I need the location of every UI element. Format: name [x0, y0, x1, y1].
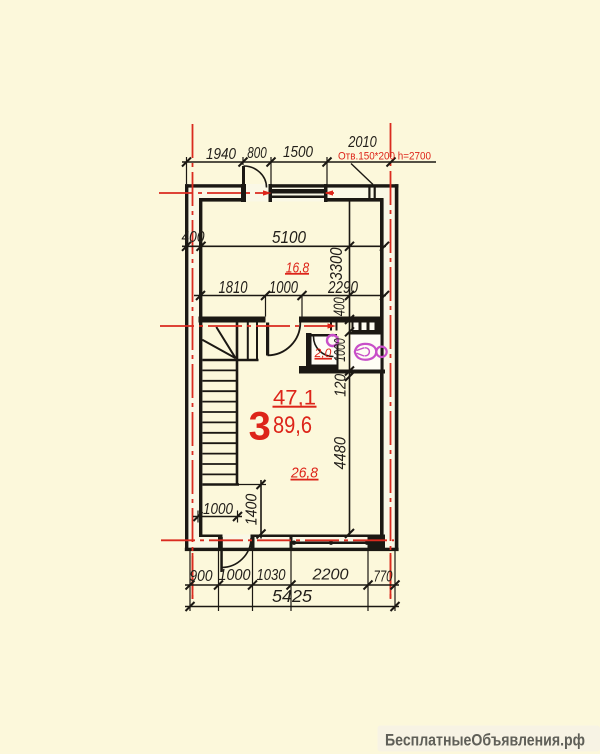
- svg-text:3300: 3300: [326, 247, 346, 280]
- svg-text:3: 3: [249, 405, 271, 449]
- svg-text:800: 800: [247, 145, 267, 162]
- svg-text:1000: 1000: [332, 338, 349, 362]
- svg-text:400: 400: [332, 297, 349, 316]
- svg-text:БесплатныеОбъявления.рф: БесплатныеОбъявления.рф: [385, 731, 585, 750]
- svg-text:1500: 1500: [283, 144, 313, 161]
- svg-text:900: 900: [190, 568, 213, 585]
- svg-text:1000: 1000: [203, 501, 233, 518]
- svg-text:89,6: 89,6: [273, 412, 312, 439]
- svg-text:2200: 2200: [311, 567, 348, 584]
- svg-text:5425: 5425: [272, 586, 312, 606]
- svg-text:1940: 1940: [206, 146, 236, 163]
- svg-text:Отв.150*200 h=2700: Отв.150*200 h=2700: [338, 151, 431, 163]
- svg-text:1000: 1000: [219, 567, 251, 584]
- svg-text:400: 400: [182, 229, 205, 246]
- svg-text:1030: 1030: [257, 567, 286, 584]
- svg-text:2010: 2010: [347, 134, 376, 151]
- svg-text:1000: 1000: [269, 277, 298, 297]
- svg-text:4480: 4480: [330, 436, 349, 469]
- svg-text:1810: 1810: [219, 277, 248, 297]
- svg-text:1400: 1400: [244, 494, 261, 526]
- svg-text:120: 120: [333, 373, 350, 396]
- svg-text:770: 770: [374, 569, 393, 586]
- svg-text:5100: 5100: [272, 227, 306, 247]
